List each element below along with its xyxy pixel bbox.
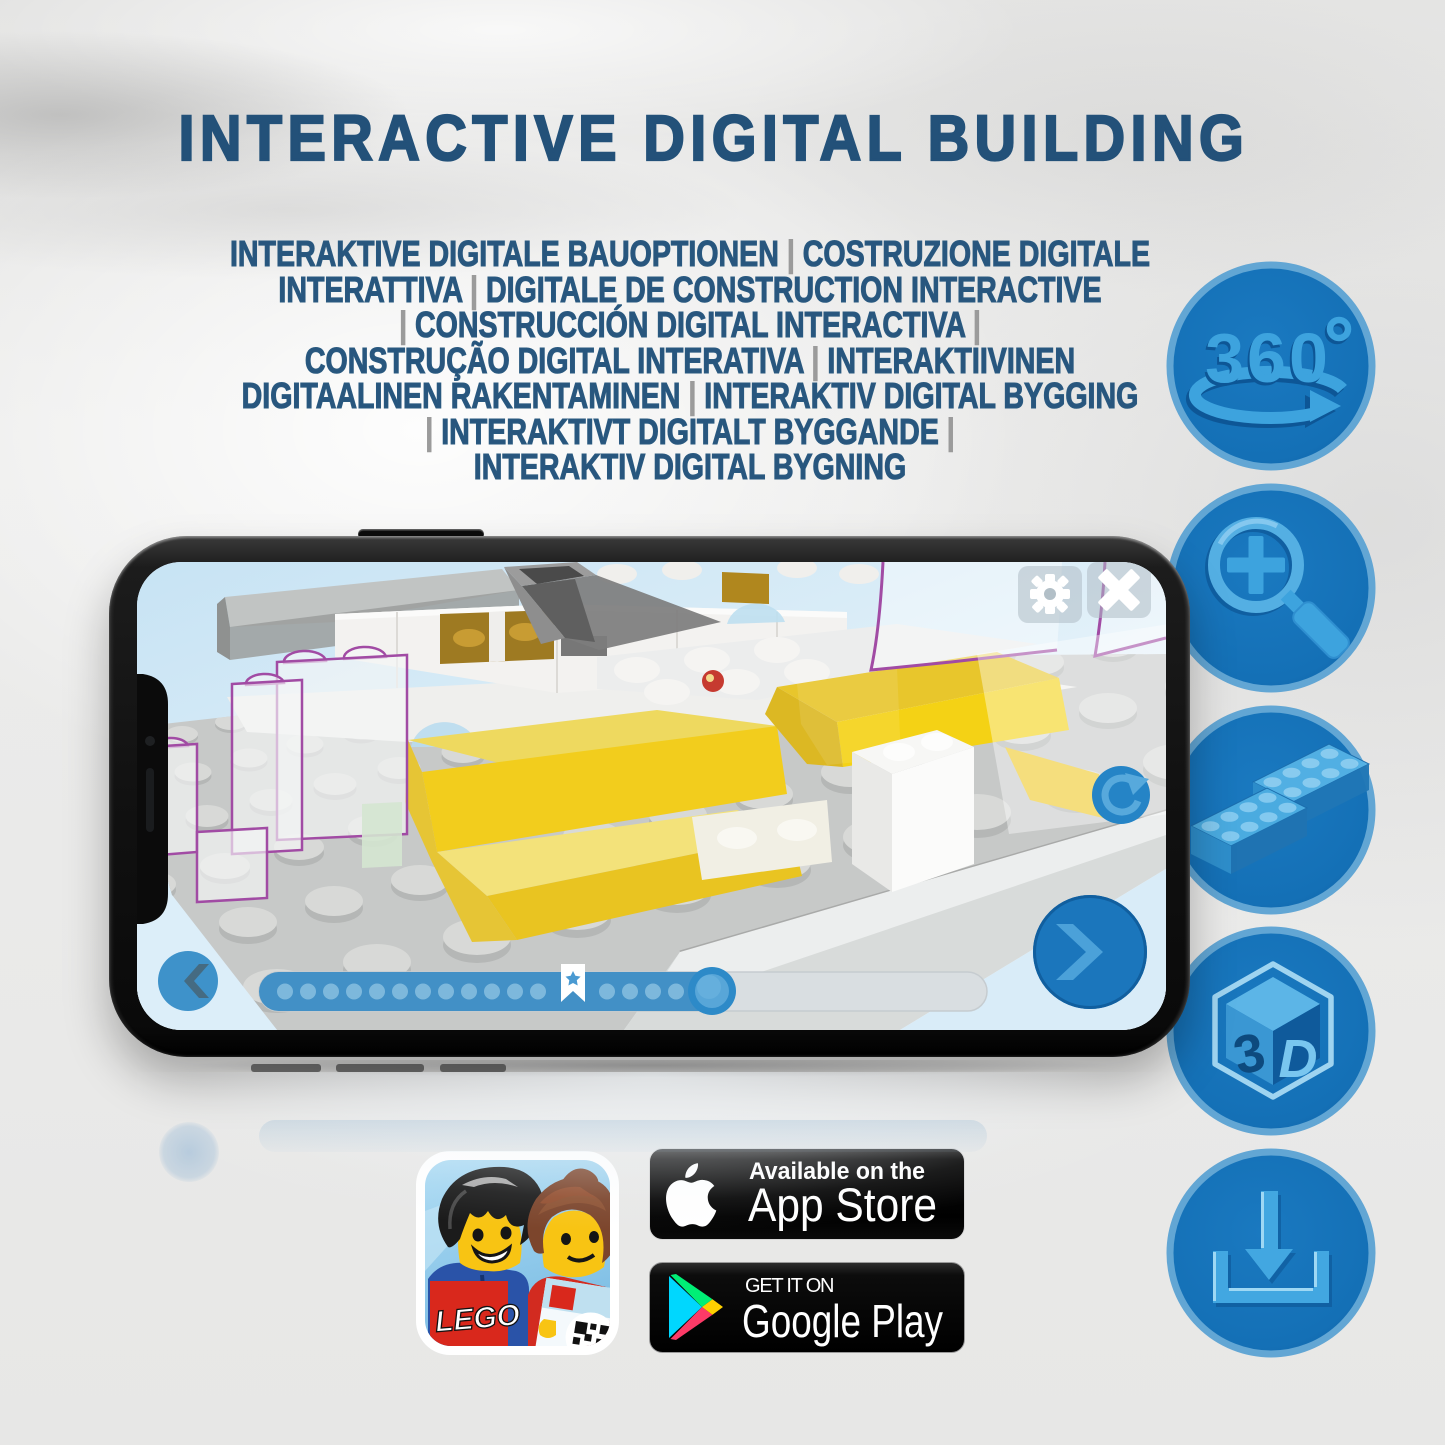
svg-text:360: 360 [1205, 319, 1331, 397]
svg-text:Google Play: Google Play [742, 1295, 943, 1347]
svg-text:D: D [1279, 1029, 1318, 1089]
svg-text:GET IT ON: GET IT ON [745, 1275, 837, 1297]
